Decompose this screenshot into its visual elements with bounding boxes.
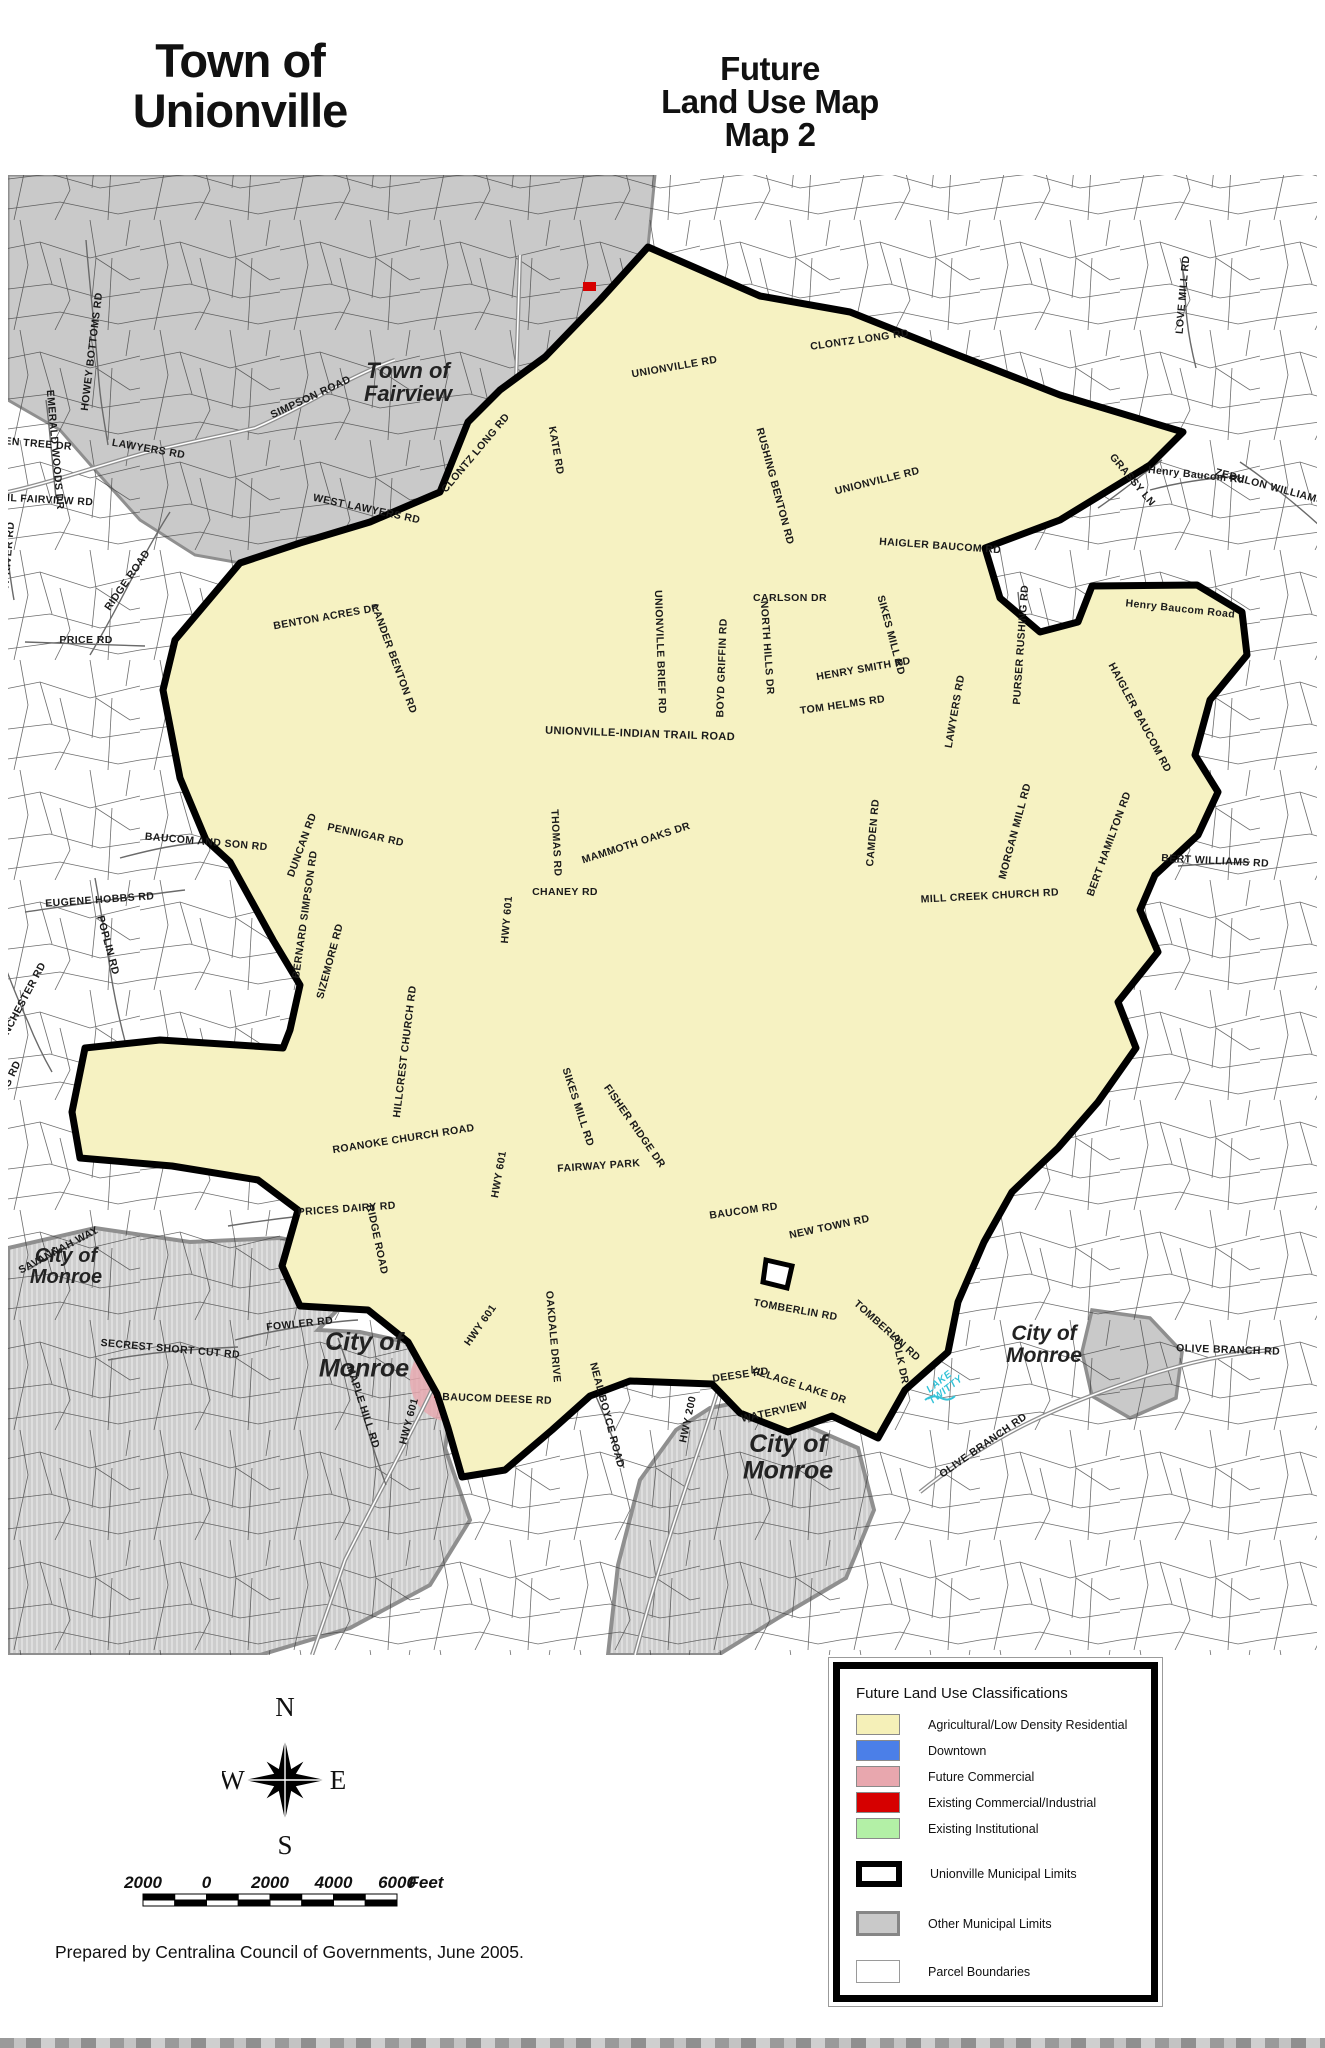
legend-item: Agricultural/Low Density Residential [856, 1714, 1141, 1735]
legend-item: Future Commercial [856, 1766, 1141, 1787]
scale-bar-segment [238, 1894, 270, 1900]
credit-text: Prepared by Centralina Council of Govern… [55, 1942, 524, 1963]
legend: Future Land Use Classifications Agricult… [828, 1657, 1163, 2007]
place-label: Town ofFairview [364, 358, 454, 406]
scale-bar: 20000200040006000 Feet [110, 1862, 530, 1917]
legend-boundary-rows: Unionville Municipal LimitsOther Municip… [856, 1861, 1141, 1983]
legend-item-label: Parcel Boundaries [928, 1965, 1030, 1979]
legend-item: Existing Commercial/Industrial [856, 1792, 1141, 1813]
scale-bar-segment [302, 1900, 334, 1906]
legend-item: Other Municipal Limits [856, 1911, 1141, 1936]
scale-bar-segments [143, 1894, 397, 1906]
scale-bar-number: 4000 [314, 1873, 353, 1892]
scale-bar-segment [270, 1900, 302, 1906]
scale-bar-segment [365, 1894, 397, 1900]
legend-title: Future Land Use Classifications [856, 1685, 1141, 1702]
legend-item: Unionville Municipal Limits [856, 1861, 1141, 1887]
map-sheet: Town of Unionville Future Land Use Map M… [0, 0, 1325, 2048]
scale-bar-segment [175, 1900, 207, 1906]
scale-bar-segment [207, 1900, 239, 1906]
scale-bar-segment [334, 1894, 366, 1900]
place-label: City ofMonroe [743, 1430, 833, 1484]
scale-bar-unit: Feet [409, 1873, 445, 1892]
legend-item-label: Existing Institutional [928, 1822, 1038, 1836]
legend-item-label: Existing Commercial/Industrial [928, 1796, 1096, 1810]
scale-bar-segment [207, 1894, 239, 1900]
place-label: City ofMonroe [319, 1328, 409, 1382]
legend-frame: Future Land Use Classifications Agricult… [833, 1662, 1158, 2002]
municipal-limit-pocket [763, 1260, 792, 1288]
scale-bar-segment [143, 1900, 175, 1906]
legend-item-label: Future Commercial [928, 1770, 1034, 1784]
legend-item-label: Other Municipal Limits [928, 1917, 1052, 1931]
future_commercial-swatch [856, 1766, 900, 1787]
scale-bar-segment [302, 1894, 334, 1900]
scale-bar-segment [175, 1894, 207, 1900]
scale-bar-segment [334, 1900, 366, 1906]
compass-north-label: N [275, 1692, 295, 1722]
scale-bar-segment [365, 1900, 397, 1906]
existing_commercial-swatch [856, 1792, 900, 1813]
road-label: PRICE RD [59, 634, 112, 646]
compass-east-label: E [330, 1765, 347, 1795]
existing_institutional-swatch [856, 1818, 900, 1839]
legend-item-label: Agricultural/Low Density Residential [928, 1718, 1127, 1732]
unionville-swatch [856, 1861, 902, 1887]
agricultural-swatch [856, 1714, 900, 1735]
compass-star [245, 1740, 325, 1820]
compass-west-label: W [222, 1765, 245, 1795]
page-edge-strip [0, 2038, 1325, 2048]
parcel-swatch [856, 1960, 900, 1983]
compass-south-label: S [277, 1830, 292, 1858]
legend-item: Existing Institutional [856, 1818, 1141, 1839]
legend-item-label: Downtown [928, 1744, 986, 1758]
legend-item-label: Unionville Municipal Limits [930, 1867, 1077, 1881]
compass-rose: N S W E [222, 1688, 348, 1858]
legend-landuse-rows: Agricultural/Low Density ResidentialDown… [856, 1714, 1141, 1839]
scale-bar-segment [238, 1900, 270, 1906]
legend-item: Downtown [856, 1740, 1141, 1761]
scale-bar-segment [270, 1894, 302, 1900]
downtown-swatch [856, 1740, 900, 1761]
scale-bar-number: 2000 [250, 1873, 289, 1892]
scale-bar-number: 0 [202, 1873, 212, 1892]
road-label: CHANEY RD [532, 886, 598, 898]
scale-bar-number: 2000 [123, 1873, 162, 1892]
other-swatch [856, 1911, 900, 1936]
scale-bar-segment [143, 1894, 175, 1900]
legend-item: Parcel Boundaries [856, 1960, 1141, 1983]
place-label: City ofMonroe [1006, 1322, 1082, 1367]
